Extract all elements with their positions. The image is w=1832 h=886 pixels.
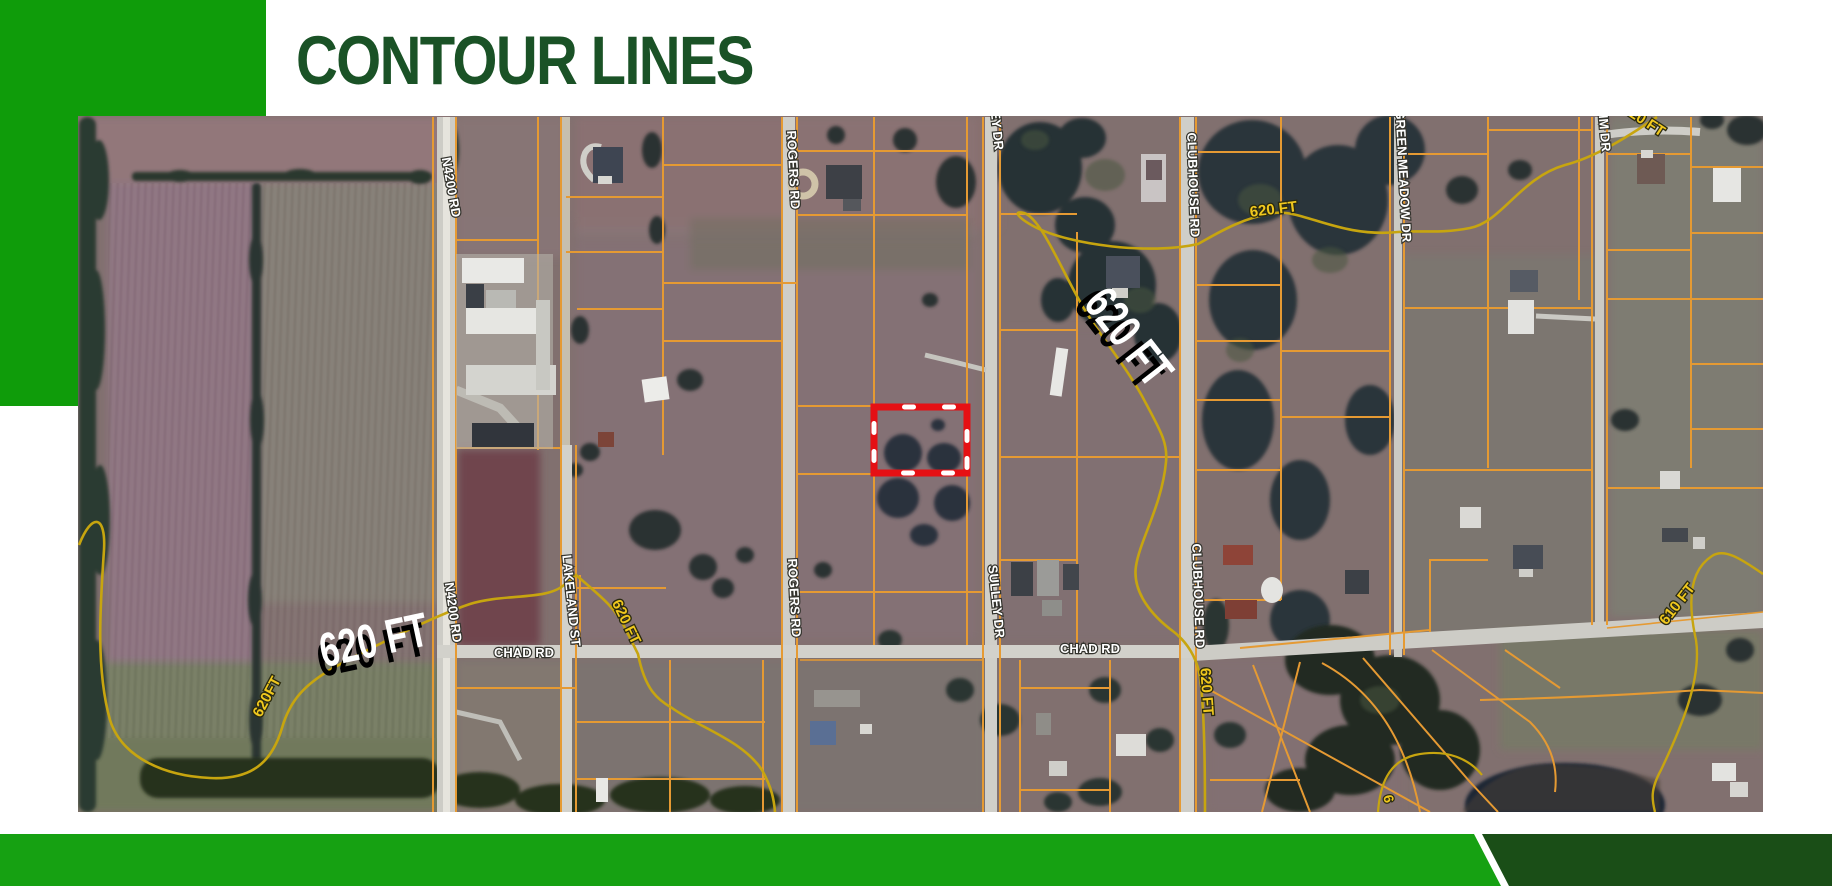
svg-text:CHAD RD: CHAD RD <box>494 645 554 660</box>
svg-text:620 FT: 620 FT <box>1196 667 1216 716</box>
svg-text:CHAD RD: CHAD RD <box>1060 641 1120 656</box>
